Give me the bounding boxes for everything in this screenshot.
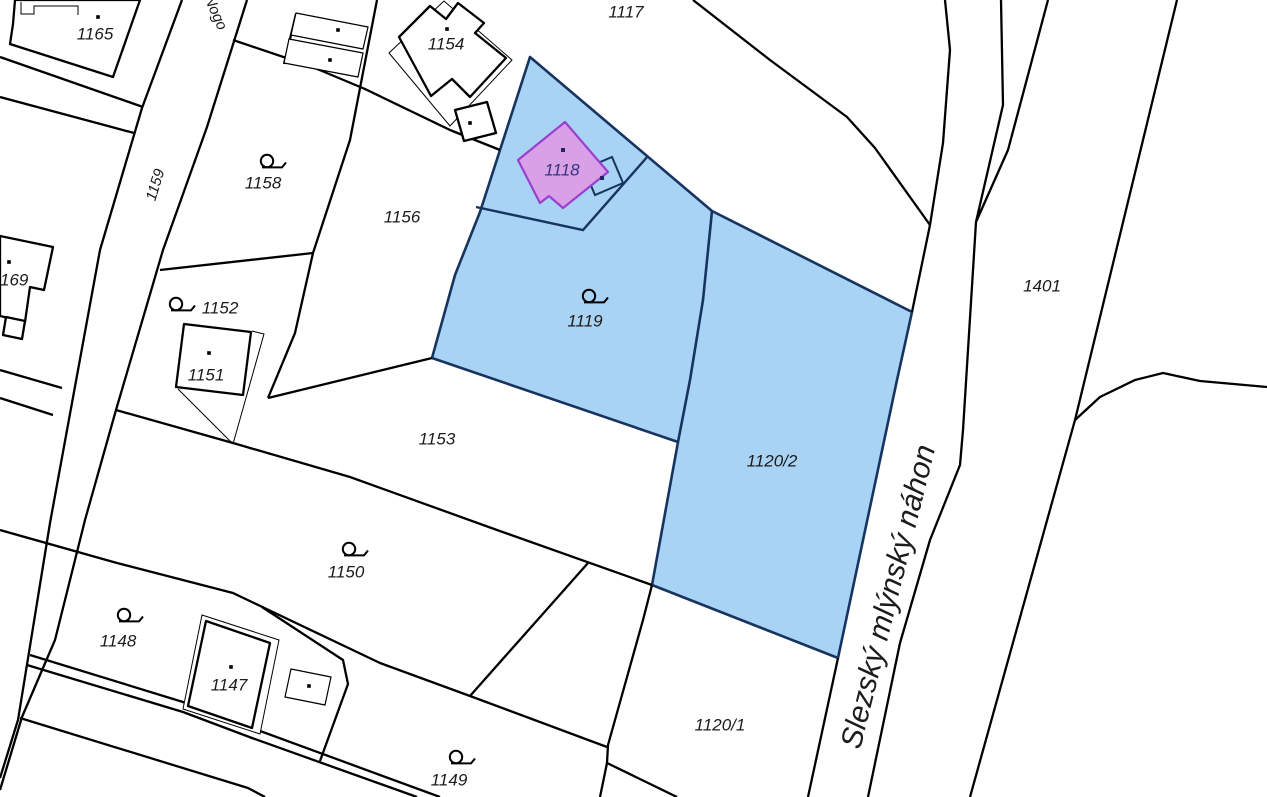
- parcel-label-1165: 1165: [77, 24, 114, 43]
- building-footprint: [3, 317, 25, 339]
- yard-symbol-icon: [450, 751, 462, 763]
- building-point-dot: [328, 58, 332, 62]
- parcel-label-1154: 1154: [428, 34, 465, 53]
- yard-symbol-icon: [261, 155, 273, 167]
- yard-symbol-icon: [119, 617, 143, 622]
- building-point-dot: [445, 27, 449, 31]
- building-footprint: [455, 102, 496, 141]
- parcel-label-1119: 1119: [567, 311, 603, 330]
- parcel-label-1148: 1148: [100, 631, 137, 650]
- parcel-boundary: [0, 97, 134, 133]
- parcel-boundary: [607, 763, 677, 797]
- yard-symbol-icon: [170, 298, 182, 310]
- parcel-boundary: [976, 0, 1003, 222]
- parcel-boundary: [693, 0, 930, 225]
- parcel-label-1401: 1401: [1023, 276, 1061, 295]
- parcel-label-1120/1: 1120/1: [695, 715, 746, 734]
- parcel-boundary: [912, 225, 930, 312]
- parcel-label-1151: 1151: [188, 365, 225, 384]
- building-point-dot: [561, 148, 565, 152]
- parcel-label-1120/2: 1120/2: [747, 451, 798, 470]
- building-point-dot: [600, 176, 604, 180]
- parcel-label-1117: 1117: [608, 2, 644, 21]
- parcel-boundary: [0, 530, 607, 747]
- yard-symbol-icon: [118, 609, 130, 621]
- building-point-dot: [229, 665, 233, 669]
- street-name-label: Nogo: [200, 0, 230, 33]
- parcel-label-1158: 1158: [245, 173, 282, 192]
- parcel-label-169: 169: [0, 270, 29, 289]
- yard-symbol-icon: [343, 543, 355, 555]
- parcel-boundary: [268, 358, 432, 398]
- building-point-dot: [207, 351, 211, 355]
- parcel-label-1152: 1152: [202, 298, 239, 317]
- parcel-label-1159: 1159: [143, 166, 169, 202]
- yard-symbol-icon: [171, 306, 195, 311]
- parcel-boundary: [0, 0, 182, 778]
- building-point-dot: [307, 684, 311, 688]
- parcel-boundary: [116, 410, 652, 585]
- parcel-label-1153: 1153: [419, 429, 456, 448]
- yard-symbol-icon: [451, 759, 475, 764]
- yard-symbol-icon: [262, 163, 286, 168]
- parcel-label-1150: 1150: [328, 562, 365, 581]
- parcel-label-1149: 1149: [431, 770, 468, 789]
- building-point-dot: [336, 28, 340, 32]
- parcel-boundary: [470, 563, 588, 696]
- cadastral-map: 11651159Nogo1158169115211511156115411171…: [0, 0, 1267, 797]
- parcel-boundary: [970, 0, 1177, 797]
- parcel-boundary: [808, 658, 838, 797]
- parcel-boundary: [0, 370, 62, 388]
- cadastral-map-canvas[interactable]: 11651159Nogo1158169115211511156115411171…: [0, 0, 1267, 797]
- parcel-boundary: [1075, 373, 1267, 420]
- parcel-label-1147: 1147: [211, 675, 248, 694]
- highlighted-parcels-region[interactable]: [432, 57, 912, 658]
- parcel-boundary: [976, 0, 1048, 222]
- parcel-label-1118: 1118: [544, 160, 580, 179]
- parcel-boundary: [0, 398, 53, 415]
- parcel-boundary: [600, 585, 652, 797]
- building-point-dot: [7, 260, 11, 264]
- building-point-dot: [96, 15, 100, 19]
- parcel-label-1156: 1156: [384, 207, 421, 226]
- building-footprint: [10, 0, 140, 77]
- yard-symbol-icon: [344, 551, 368, 556]
- parcel-boundary: [930, 0, 950, 225]
- building-point-dot: [468, 121, 472, 125]
- parcel-boundary: [160, 253, 313, 270]
